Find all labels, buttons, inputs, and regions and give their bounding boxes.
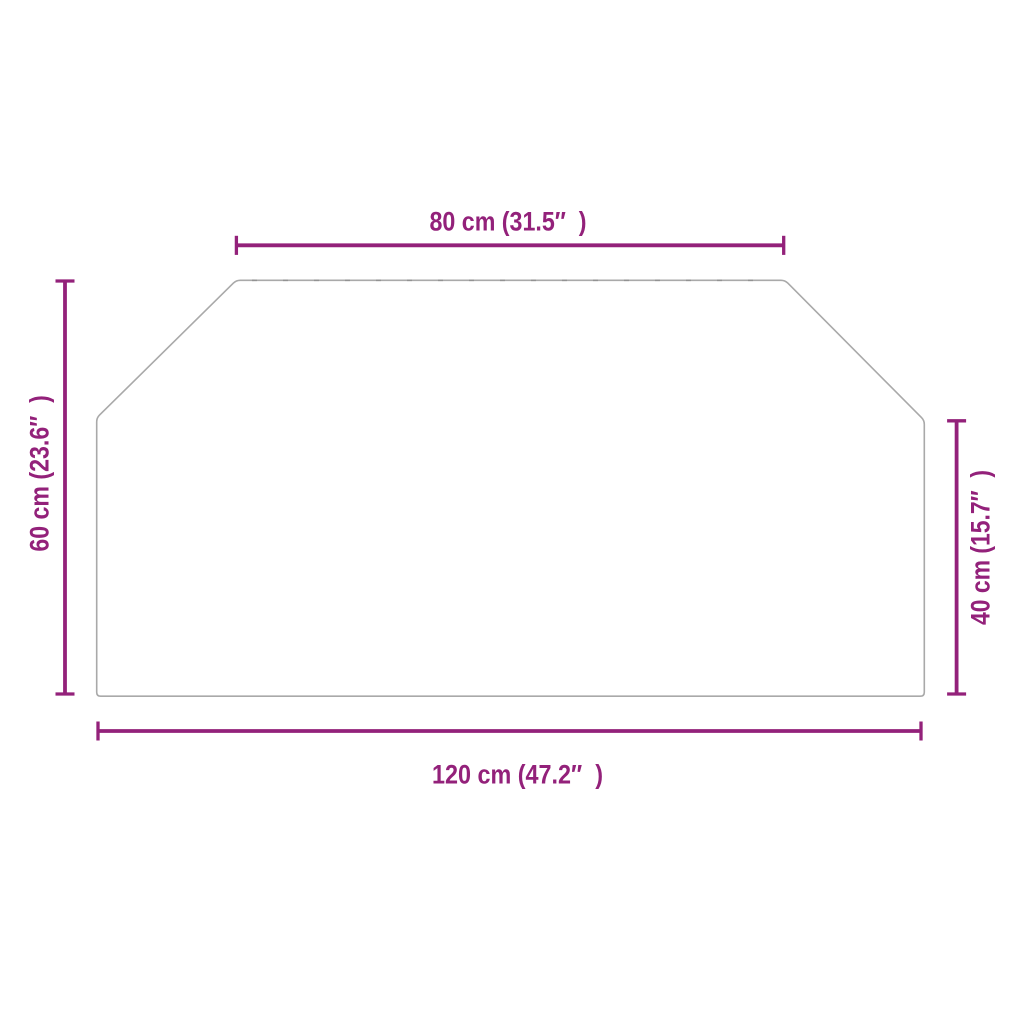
svg-text:60 cm (23.6″ ): 60 cm (23.6″ ) [25,395,55,552]
svg-text:80 cm (31.5″ ): 80 cm (31.5″ ) [430,207,587,237]
svg-text:40 cm (15.7″ ): 40 cm (15.7″ ) [966,470,996,625]
svg-text:120 cm (47.2″ ): 120 cm (47.2″ ) [432,759,603,789]
